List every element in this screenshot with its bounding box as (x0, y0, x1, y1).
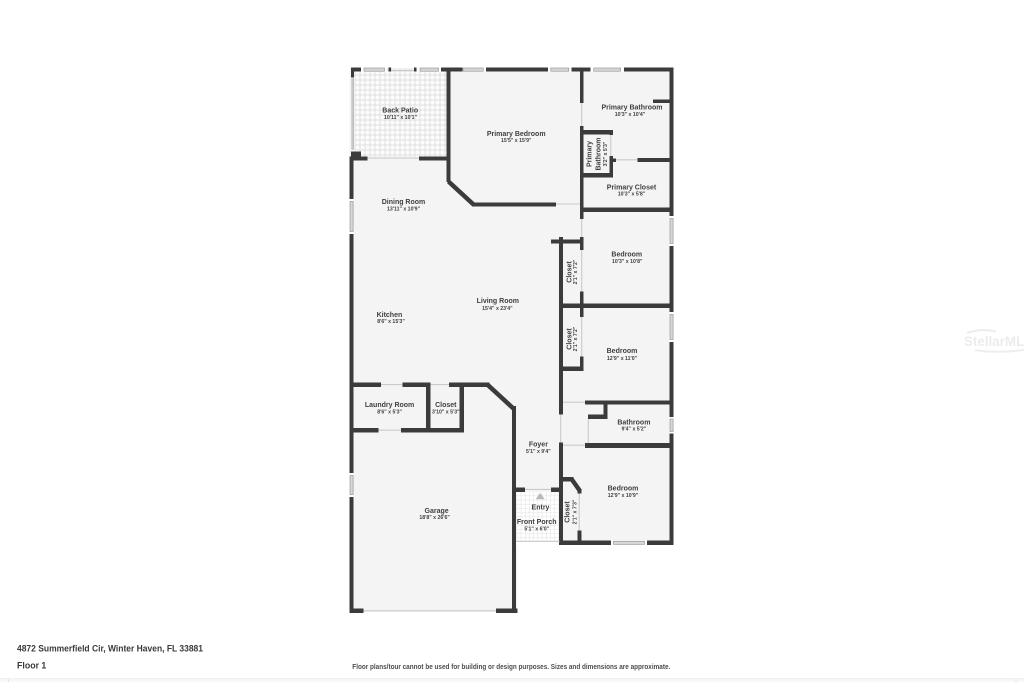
svg-text:Primary Bedroom: Primary Bedroom (487, 131, 546, 138)
svg-text:5'1" x 9'4": 5'1" x 9'4" (526, 449, 551, 455)
svg-text:2'1" x 7'2": 2'1" x 7'2" (573, 259, 579, 284)
svg-text:9'4" x 5'2": 9'4" x 5'2" (622, 427, 647, 433)
svg-text:Foyer: Foyer (529, 441, 548, 448)
svg-text:8'6" x 5'3": 8'6" x 5'3" (377, 410, 402, 416)
svg-text:3'2" x 5'3": 3'2" x 5'3" (603, 141, 609, 166)
svg-text:Bathroom: Bathroom (617, 419, 650, 426)
svg-text:Garage: Garage (425, 508, 449, 515)
svg-text:5'1" x 6'0": 5'1" x 6'0" (524, 526, 549, 532)
svg-text:Dining Room: Dining Room (382, 199, 426, 206)
svg-text:2'1" x 7'3": 2'1" x 7'3" (572, 499, 578, 524)
svg-text:Bedroom: Bedroom (608, 486, 639, 493)
svg-text:3'10" x 5'3": 3'10" x 5'3" (432, 410, 460, 416)
svg-text:Bedroom: Bedroom (611, 251, 642, 258)
svg-text:StellarMLS: StellarMLS (964, 334, 1024, 349)
svg-text:15'4" x 23'4": 15'4" x 23'4" (482, 306, 513, 312)
svg-text:Floor plans/tour cannot be use: Floor plans/tour cannot be used for buil… (352, 664, 670, 671)
svg-text:Bedroom: Bedroom (607, 348, 638, 355)
svg-text:4872 Summerfield Cir, Winter H: 4872 Summerfield Cir, Winter Haven, FL 3… (17, 644, 203, 654)
svg-text:Primary Closet: Primary Closet (607, 184, 657, 191)
svg-text:Primary Bathroom: Primary Bathroom (601, 105, 662, 112)
svg-text:12'9" x 10'9": 12'9" x 10'9" (608, 493, 639, 499)
svg-text:8'6" x 15'3": 8'6" x 15'3" (377, 319, 405, 325)
svg-text:Back Patio: Back Patio (382, 107, 418, 114)
svg-text:Entry: Entry (532, 504, 550, 511)
svg-text:Bathroom: Bathroom (596, 137, 603, 170)
svg-text:2'1" x 7'2": 2'1" x 7'2" (573, 326, 579, 351)
svg-text:12'9" x 11'0": 12'9" x 11'0" (607, 356, 638, 362)
svg-text:15'5" x 15'9": 15'5" x 15'9" (501, 138, 532, 144)
svg-text:Kitchen: Kitchen (377, 312, 403, 319)
svg-text:13'11" x 10'9": 13'11" x 10'9" (387, 206, 421, 212)
svg-text:Closet: Closet (565, 501, 572, 523)
svg-text:Laundry Room: Laundry Room (365, 402, 414, 409)
svg-text:10'3" x 10'8": 10'3" x 10'8" (612, 259, 643, 265)
svg-text:Primary: Primary (586, 141, 593, 167)
svg-text:10'3" x 10'4": 10'3" x 10'4" (615, 112, 646, 118)
svg-text:Living Room: Living Room (477, 298, 519, 305)
svg-text:Front Porch: Front Porch (517, 519, 557, 526)
svg-text:10'11" x 10'1": 10'11" x 10'1" (384, 115, 418, 121)
svg-text:18'8" x 26'6": 18'8" x 26'6" (419, 515, 450, 521)
svg-text:Closet: Closet (435, 402, 457, 409)
svg-text:10'3" x 5'8": 10'3" x 5'8" (618, 192, 646, 198)
svg-text:Floor 1: Floor 1 (17, 660, 46, 670)
